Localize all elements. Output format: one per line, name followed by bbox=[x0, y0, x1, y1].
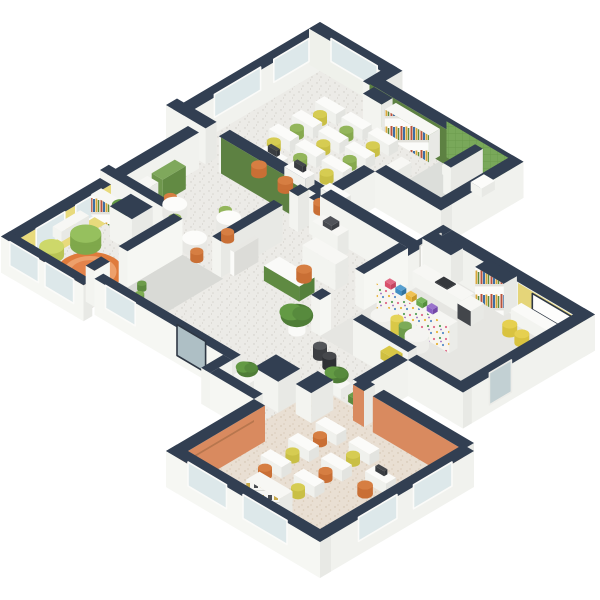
corridor-planter-2-plant-foliage-c bbox=[244, 363, 257, 372]
office-chair-g-top bbox=[357, 480, 373, 489]
bar-stool-2-top bbox=[514, 329, 529, 338]
vestibule-pot-1-top bbox=[137, 280, 146, 286]
chair-g1-top bbox=[313, 431, 327, 439]
wall-hall-loungeF-2 bbox=[311, 288, 331, 336]
office-chair-g bbox=[357, 480, 373, 498]
sofa-pillow-green-top bbox=[399, 321, 412, 329]
office-chair-1-top bbox=[251, 160, 267, 169]
cafe-chair-6-top bbox=[190, 247, 203, 255]
chair-g6-top bbox=[291, 483, 305, 491]
office-chair-1 bbox=[251, 160, 267, 178]
chair-g3-top bbox=[285, 447, 299, 455]
wall-north-classroomG-stub-face-south bbox=[353, 385, 364, 428]
floorplan-canvas bbox=[0, 0, 600, 600]
office-chair-2-top bbox=[278, 176, 294, 185]
chair-a7-top bbox=[267, 137, 281, 145]
beanbag-green bbox=[70, 224, 101, 254]
chair-a9 bbox=[320, 169, 334, 185]
beanbag-green-top bbox=[70, 224, 101, 242]
chair-a4-top bbox=[290, 124, 304, 132]
wall-cafe-hall-1 bbox=[289, 184, 309, 232]
wall-hall-loungeF-2-face-east bbox=[320, 294, 331, 337]
wall-cafe-hall-1-face-south bbox=[289, 191, 298, 232]
wall-south-classroomG-face-east bbox=[320, 536, 331, 579]
trash-bin-1-top bbox=[313, 342, 327, 350]
wall-cafe-hall-2-face-south bbox=[212, 236, 221, 277]
cafe-table-1-top bbox=[162, 197, 187, 212]
chair-g2-top bbox=[346, 451, 360, 459]
leaning-whiteboard-face-south bbox=[230, 250, 234, 276]
wall-cafe-hall-1-face-east bbox=[298, 190, 309, 233]
chair-a3-top bbox=[366, 141, 380, 149]
confetti-accent-wall-face-east bbox=[449, 321, 457, 353]
wall-loungeD-vestibule-2-face-south bbox=[86, 266, 95, 307]
hall-plant-foliage-c bbox=[292, 306, 312, 320]
bar-stool-1-top bbox=[502, 320, 517, 329]
chair-a5-top bbox=[316, 139, 330, 147]
wall-hall-loungeF-1-face-south bbox=[355, 269, 364, 310]
corridor-planter-1-plant-foliage-c bbox=[334, 368, 348, 378]
cafe-chair-4-top bbox=[221, 228, 234, 236]
trash-bin-2-top bbox=[322, 352, 336, 360]
chair-g4-top bbox=[318, 467, 332, 475]
chair-a2-top bbox=[339, 126, 353, 134]
cafe-chair-6 bbox=[190, 247, 203, 263]
floorplan-3d-render bbox=[0, 0, 600, 600]
cafe-chair-4 bbox=[221, 228, 234, 244]
chair-a6-top bbox=[343, 155, 357, 163]
chair-a9-top bbox=[320, 169, 334, 177]
chair-g6 bbox=[291, 483, 305, 499]
reception-chair-top bbox=[296, 265, 312, 274]
reception-chair bbox=[296, 265, 312, 284]
chair-a1-top bbox=[313, 110, 327, 118]
wall-north-classroomG-stub bbox=[353, 378, 375, 427]
wall-west-corridor-face-south bbox=[201, 368, 210, 409]
sofa-arm-right-top bbox=[405, 328, 429, 342]
wall-south-loungeF-ext-face-east bbox=[463, 387, 472, 428]
wall-loungeD-vestibule-1-face-south bbox=[119, 246, 128, 287]
vestibule-pot-1 bbox=[137, 280, 146, 292]
cafe-table-3-top bbox=[182, 231, 207, 246]
wall-north-cafe-1-face-east bbox=[206, 122, 217, 164]
sofa-pillow-yellow-top bbox=[390, 315, 403, 323]
chair-g5-top bbox=[258, 464, 272, 472]
chair-a8-top bbox=[293, 153, 307, 161]
